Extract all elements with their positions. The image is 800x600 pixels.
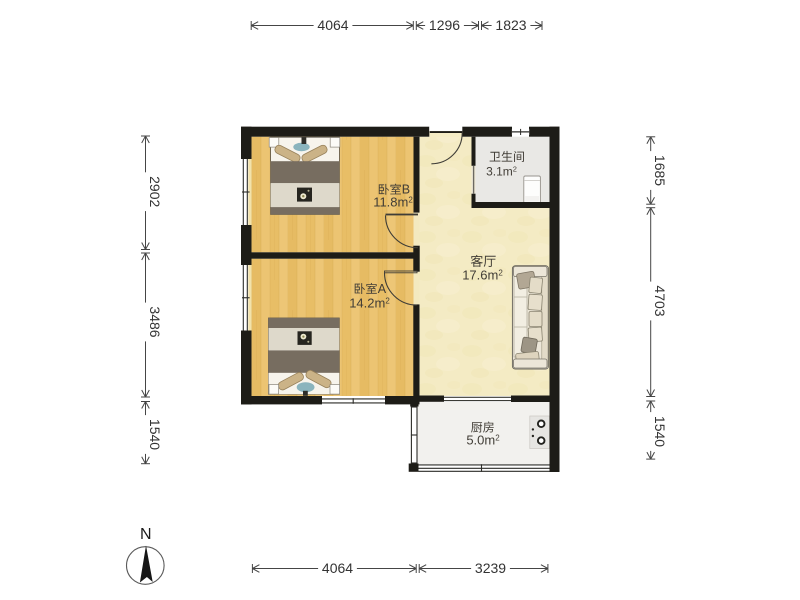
- svg-text:4064: 4064: [322, 560, 353, 576]
- svg-text:2902: 2902: [147, 176, 163, 207]
- svg-text:1296: 1296: [429, 17, 460, 33]
- svg-text:1823: 1823: [495, 17, 526, 33]
- svg-text:3486: 3486: [147, 306, 163, 337]
- svg-text:5.0m2: 5.0m2: [466, 433, 500, 448]
- svg-text:14.2m2: 14.2m2: [349, 296, 390, 311]
- svg-text:1685: 1685: [652, 155, 668, 186]
- svg-text:3.1m2: 3.1m2: [486, 165, 517, 179]
- svg-text:3239: 3239: [475, 560, 506, 576]
- svg-text:4064: 4064: [317, 17, 348, 33]
- svg-text:11.8m2: 11.8m2: [373, 195, 413, 210]
- svg-text:N: N: [140, 526, 152, 543]
- svg-text:A: A: [378, 282, 387, 296]
- svg-text:1540: 1540: [652, 416, 668, 447]
- svg-text:1540: 1540: [147, 419, 163, 450]
- svg-text:17.6m2: 17.6m2: [462, 268, 503, 283]
- svg-text:4703: 4703: [652, 285, 668, 316]
